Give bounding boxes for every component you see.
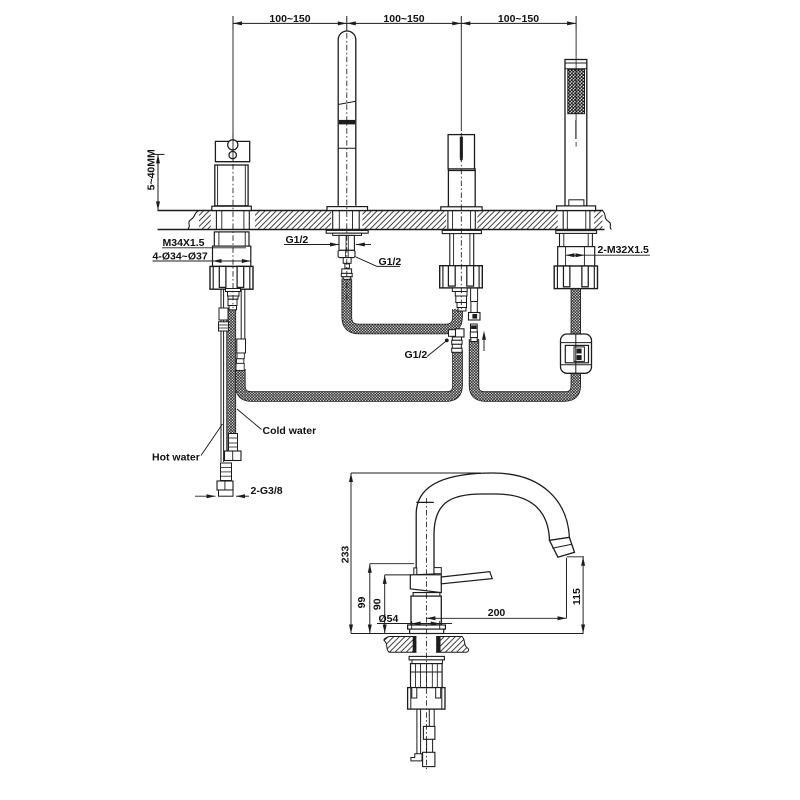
svg-text:Hot water: Hot water xyxy=(152,452,200,464)
svg-text:G1/2: G1/2 xyxy=(405,349,428,361)
svg-text:90: 90 xyxy=(371,598,383,610)
svg-text:100~150: 100~150 xyxy=(383,13,424,25)
svg-text:99: 99 xyxy=(356,597,368,609)
svg-text:100~150: 100~150 xyxy=(498,13,539,25)
svg-text:M34X1.5: M34X1.5 xyxy=(163,237,205,249)
svg-text:100~150: 100~150 xyxy=(269,13,310,25)
svg-text:2-M32X1.5: 2-M32X1.5 xyxy=(598,244,650,256)
svg-text:5~40MM: 5~40MM xyxy=(146,149,158,190)
svg-text:2-G3/8: 2-G3/8 xyxy=(251,485,283,497)
svg-text:233: 233 xyxy=(339,546,351,564)
svg-text:Cold water: Cold water xyxy=(263,425,317,437)
svg-text:200: 200 xyxy=(488,607,506,619)
svg-text:115: 115 xyxy=(571,588,583,605)
